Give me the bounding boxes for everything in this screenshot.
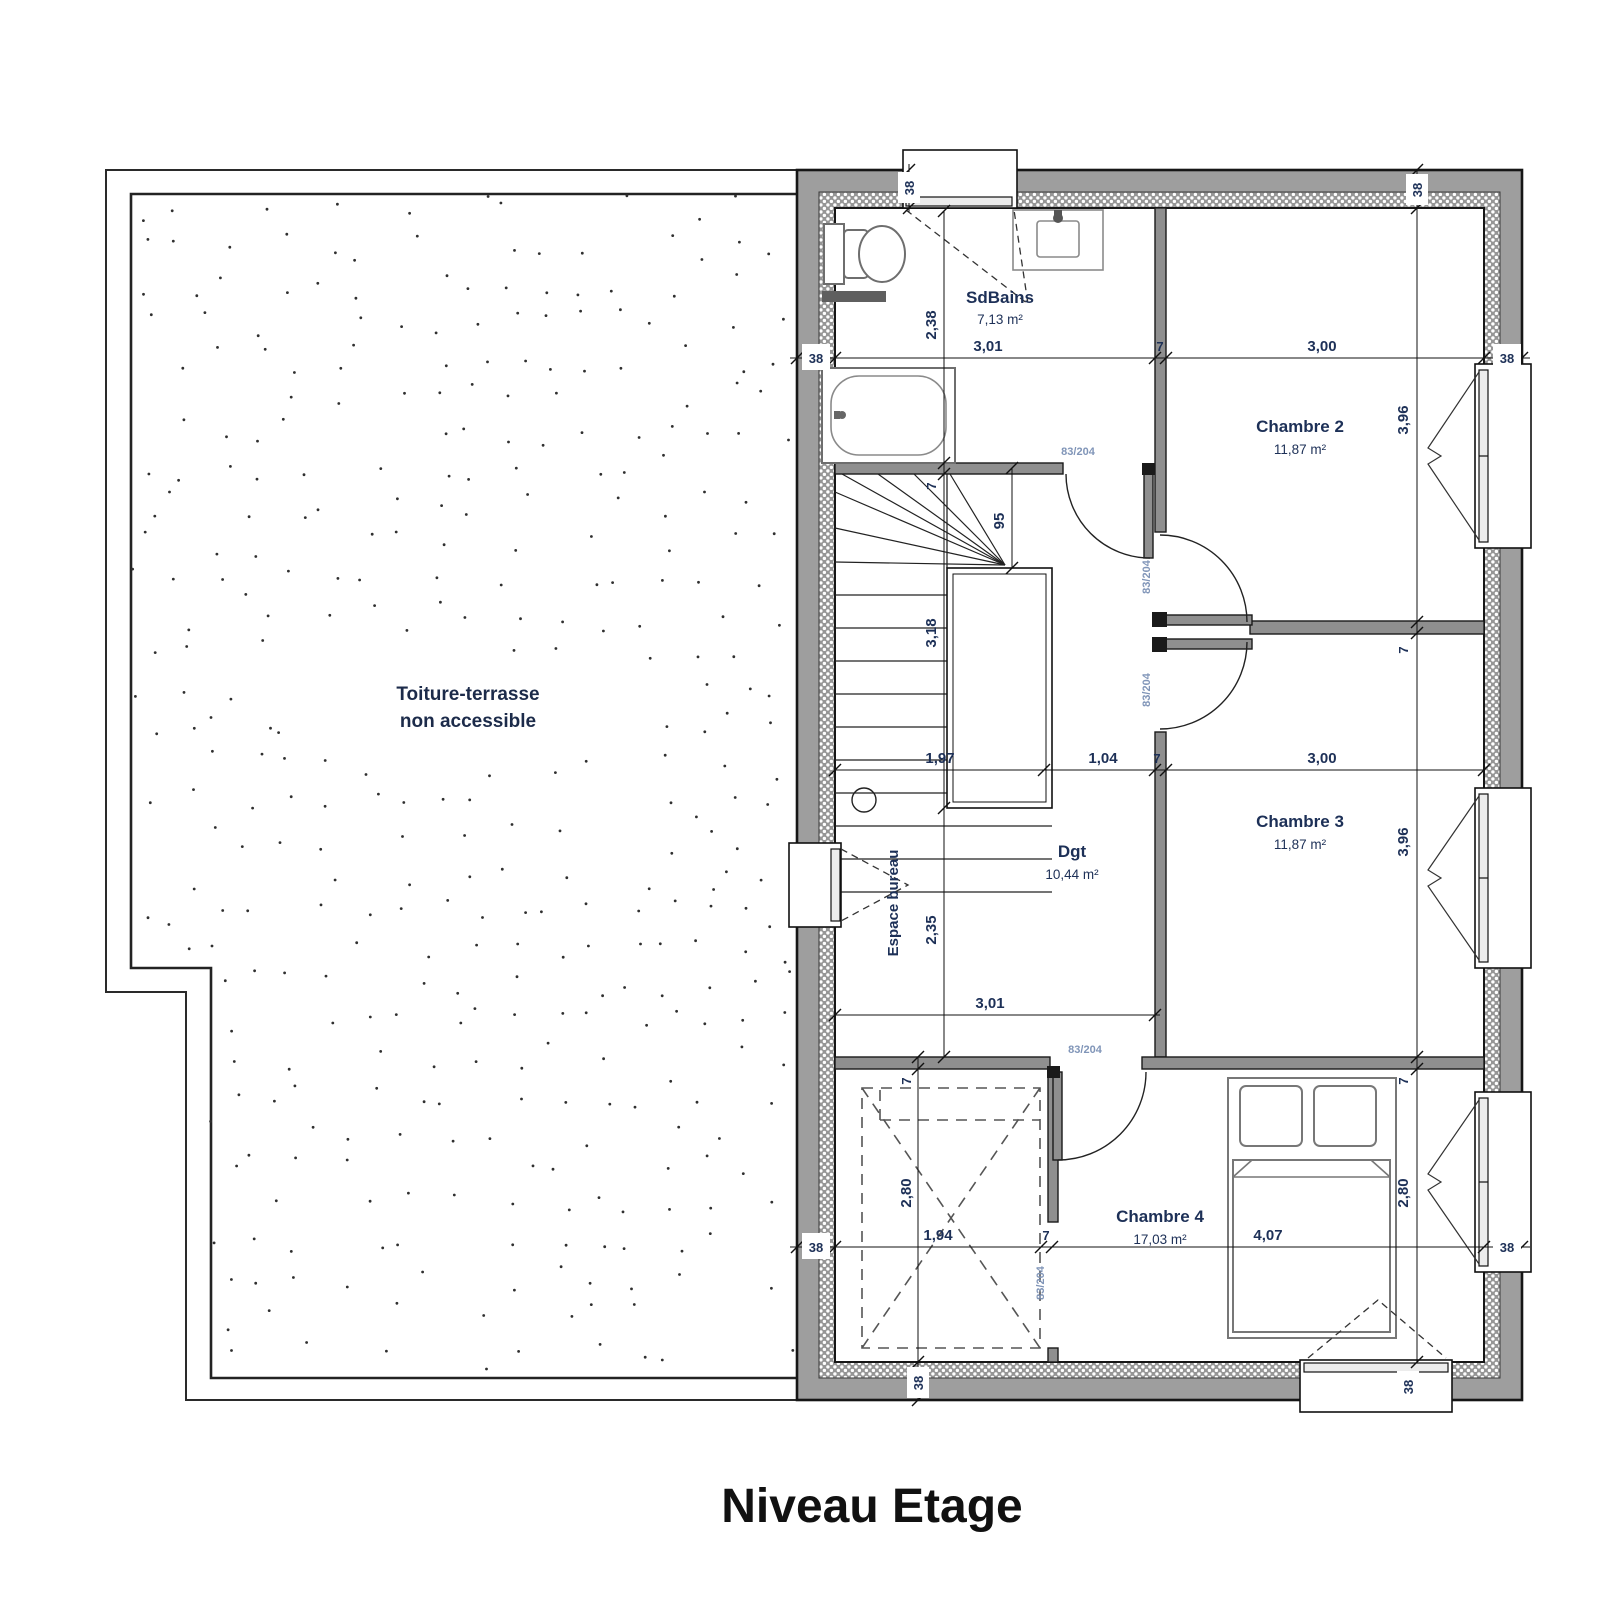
room-sdbains-name: SdBains: [966, 288, 1034, 307]
roof-terrace: Toiture-terrasse non accessible: [106, 170, 797, 1400]
dim-wall38-top-left: 38: [902, 181, 917, 195]
dim-bot-407: 4,07: [1253, 1227, 1282, 1244]
door-label-chambre3: 83/204: [1141, 672, 1153, 707]
door-label-chambre2: 83/204: [1141, 559, 1153, 594]
wall-closet-partition-stub: [1048, 1348, 1058, 1362]
dim-bot-38l: 38: [809, 1240, 823, 1255]
dim-top-38l: 38: [809, 351, 823, 366]
room-chambre2-name: Chambre 2: [1256, 417, 1344, 436]
dim-top-300: 3,00: [1307, 338, 1336, 355]
dim-mid-104: 1,04: [1088, 750, 1118, 767]
bed: [1228, 1078, 1396, 1338]
dim-top-38r: 38: [1500, 351, 1514, 366]
page-title: Niveau Etage: [721, 1480, 1022, 1533]
dim-bureau-235: 2,35: [923, 915, 940, 944]
dim-sdbains-height: 2,38: [923, 310, 940, 339]
terrace-label-line2: non accessible: [400, 711, 536, 732]
dim-wall38-bottom-window: 38: [1401, 1380, 1416, 1394]
room-chambre3-name: Chambre 3: [1256, 812, 1344, 831]
dim-mid-300: 3,00: [1307, 750, 1336, 767]
dim-stair-318: 3,18: [923, 618, 940, 647]
door-label-sdbains: 83/204: [1061, 446, 1096, 458]
dim-stair-width-95: 95: [991, 513, 1008, 530]
door-label-chambre4: 83/204: [1068, 1044, 1103, 1056]
dim-wall38-bottom-left: 38: [911, 1376, 926, 1390]
stair-void: [947, 568, 1052, 808]
dim-wall38-top-right: 38: [1410, 183, 1425, 197]
terrace-label-line1: Toiture-terrasse: [396, 684, 539, 705]
room-chambre3-area: 11,87 m²: [1274, 837, 1327, 852]
dim-top-301: 3,01: [973, 338, 1002, 355]
dim-ch4-280-right: 2,80: [1395, 1178, 1412, 1207]
wall-chambre4-top-right: [1142, 1057, 1484, 1069]
toilet-shelf: [822, 291, 886, 302]
dim-ch4wall-7-left: 7: [899, 1077, 914, 1084]
dim-mid-7: 7: [1153, 751, 1160, 766]
floor-plan-page: Toiture-terrasse non accessible: [0, 0, 1600, 1623]
dim-bot-38r: 38: [1500, 1240, 1514, 1255]
dim-mid-197: 1,97: [925, 750, 954, 767]
dim-bot-194: 1,94: [923, 1227, 953, 1244]
floor-plan-svg: Toiture-terrasse non accessible: [0, 0, 1600, 1623]
room-dgt-area: 10,44 m²: [1045, 867, 1099, 882]
dim-ch3-396: 3,96: [1395, 827, 1412, 856]
dim-sdbains-wall7: 7: [924, 482, 939, 489]
wall-hall-lower: [1155, 732, 1166, 1057]
dim-ch4wall-7-right: 7: [1396, 1077, 1411, 1084]
room-dgt-name: Dgt: [1058, 842, 1087, 861]
wall-chambre2-chambre3: [1250, 621, 1484, 634]
dim-sepwall-7: 7: [1396, 646, 1411, 653]
door-label-closet: 83/204: [1035, 1265, 1047, 1300]
room-chambre2-area: 11,87 m²: [1274, 442, 1327, 457]
room-chambre4-area: 17,03 m²: [1133, 1232, 1187, 1247]
room-chambre4-name: Chambre 4: [1116, 1207, 1204, 1226]
wall-hall-upper: [1155, 208, 1166, 532]
room-bureau-name: Espace bureau: [885, 850, 902, 957]
dim-bot-7: 7: [1042, 1228, 1049, 1243]
dim-top-7: 7: [1156, 339, 1163, 354]
dim-ch2-396: 3,96: [1395, 405, 1412, 434]
dim-bureau-301: 3,01: [975, 995, 1004, 1012]
room-sdbains-area: 7,13 m²: [977, 312, 1023, 327]
bathtub: [822, 368, 955, 463]
terrace-inner-boundary: [131, 194, 797, 1378]
dim-ch4-280-left: 2,80: [898, 1178, 915, 1207]
